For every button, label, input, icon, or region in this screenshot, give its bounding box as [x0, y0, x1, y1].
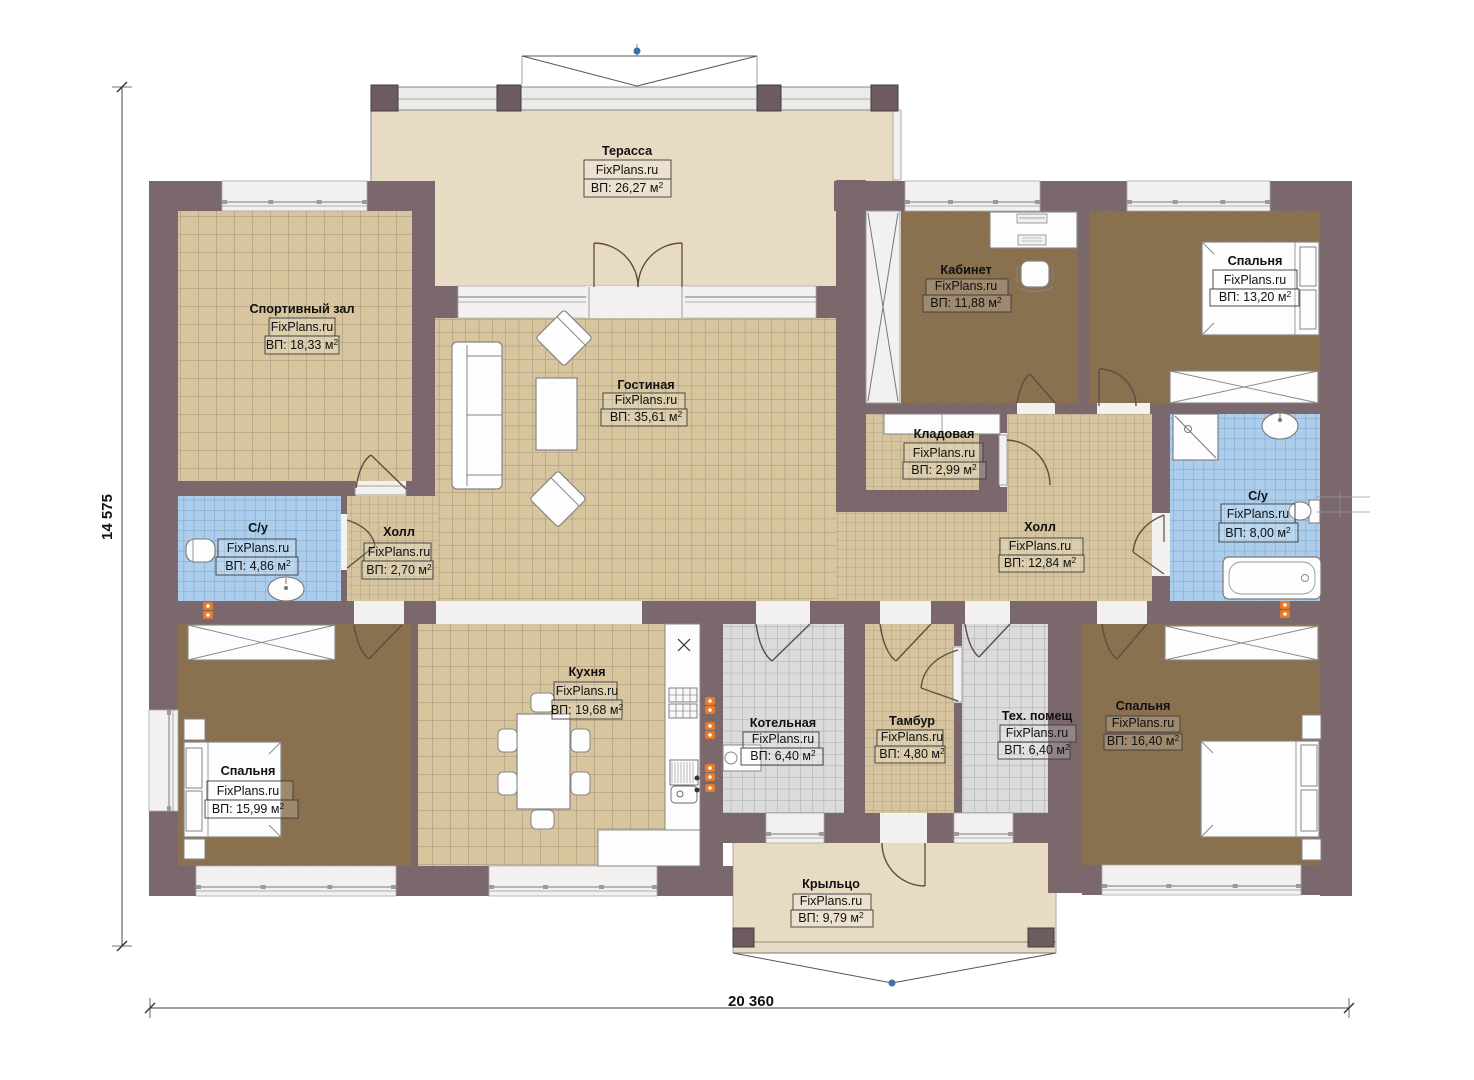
svg-text:Тамбур: Тамбур [889, 714, 935, 728]
svg-text:ВП: 26,27 м2: ВП: 26,27 м2 [591, 180, 664, 195]
svg-text:FixPlans.ru: FixPlans.ru [881, 730, 944, 744]
svg-text:ВП: 19,68 м2: ВП: 19,68 м2 [551, 702, 624, 717]
svg-text:ВП: 4,86 м2: ВП: 4,86 м2 [225, 558, 291, 573]
svg-text:Крыльцо: Крыльцо [802, 877, 860, 891]
svg-text:FixPlans.ru: FixPlans.ru [1112, 716, 1175, 730]
svg-text:14 575: 14 575 [99, 494, 116, 540]
svg-text:ВП: 35,61 м2: ВП: 35,61 м2 [610, 409, 683, 424]
svg-text:ВП: 15,99 м2: ВП: 15,99 м2 [212, 801, 285, 816]
svg-text:ВП: 6,40 м2: ВП: 6,40 м2 [750, 748, 816, 763]
svg-text:FixPlans.ru: FixPlans.ru [800, 894, 863, 908]
svg-text:FixPlans.ru: FixPlans.ru [913, 446, 976, 460]
svg-text:Котельная: Котельная [750, 716, 816, 730]
svg-text:FixPlans.ru: FixPlans.ru [1006, 726, 1069, 740]
svg-text:Холл: Холл [383, 525, 415, 539]
svg-text:Спальня: Спальня [1116, 699, 1171, 713]
svg-text:ВП: 2,70 м2: ВП: 2,70 м2 [366, 562, 432, 577]
svg-text:Гостиная: Гостиная [617, 378, 674, 392]
svg-text:ВП: 12,84 м2: ВП: 12,84 м2 [1004, 555, 1077, 570]
svg-text:FixPlans.ru: FixPlans.ru [1009, 539, 1072, 553]
svg-text:ВП: 16,40 м2: ВП: 16,40 м2 [1107, 733, 1180, 748]
svg-text:Спортивный зал: Спортивный зал [249, 302, 354, 316]
svg-text:ВП: 4,80 м2: ВП: 4,80 м2 [879, 746, 945, 761]
svg-text:ВП: 13,20 м2: ВП: 13,20 м2 [1219, 289, 1292, 304]
svg-text:FixPlans.ru: FixPlans.ru [752, 732, 815, 746]
svg-text:20 360: 20 360 [728, 993, 774, 1010]
svg-text:FixPlans.ru: FixPlans.ru [615, 393, 678, 407]
svg-text:Спальня: Спальня [1228, 254, 1283, 268]
svg-text:FixPlans.ru: FixPlans.ru [368, 545, 431, 559]
svg-text:Холл: Холл [1024, 520, 1056, 534]
svg-text:FixPlans.ru: FixPlans.ru [1224, 273, 1287, 287]
svg-text:ВП: 9,79 м2: ВП: 9,79 м2 [798, 910, 864, 925]
svg-text:FixPlans.ru: FixPlans.ru [217, 784, 280, 798]
svg-text:ВП: 8,00 м2: ВП: 8,00 м2 [1225, 525, 1291, 540]
svg-text:ВП: 6,40 м2: ВП: 6,40 м2 [1004, 742, 1070, 757]
svg-text:Кухня: Кухня [568, 665, 605, 679]
svg-text:Терасса: Терасса [602, 144, 653, 158]
svg-text:FixPlans.ru: FixPlans.ru [271, 320, 334, 334]
svg-text:Спальня: Спальня [221, 764, 276, 778]
svg-text:FixPlans.ru: FixPlans.ru [227, 541, 290, 555]
svg-text:FixPlans.ru: FixPlans.ru [935, 279, 998, 293]
svg-text:ВП: 2,99 м2: ВП: 2,99 м2 [911, 462, 977, 477]
svg-text:Кабинет: Кабинет [940, 263, 991, 277]
svg-text:С/у: С/у [1248, 489, 1268, 503]
svg-text:FixPlans.ru: FixPlans.ru [1227, 507, 1290, 521]
svg-text:Тех. помещ: Тех. помещ [1002, 709, 1073, 723]
svg-text:Кладовая: Кладовая [914, 427, 975, 441]
svg-text:ВП: 11,88 м2: ВП: 11,88 м2 [930, 295, 1002, 310]
svg-text:FixPlans.ru: FixPlans.ru [596, 163, 659, 177]
svg-text:ВП: 18,33 м2: ВП: 18,33 м2 [266, 337, 339, 352]
svg-text:FixPlans.ru: FixPlans.ru [556, 684, 619, 698]
svg-text:С/у: С/у [248, 521, 268, 535]
